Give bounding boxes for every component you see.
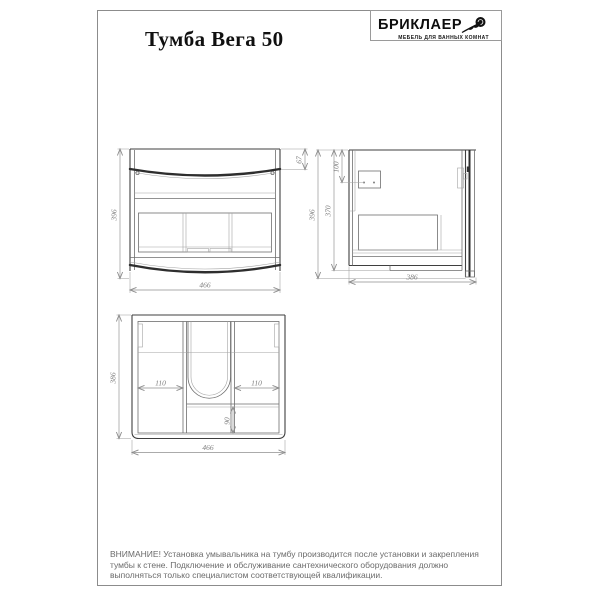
dim-front-height: 396 [110,209,119,222]
front-view-structure [130,149,280,272]
sink-drain-cutout [188,322,231,399]
dim-top-depth: 386 [109,372,118,385]
top-view-dimensions: 386 466 110 110 90 [109,315,286,455]
front-view: 396 466 67 [110,149,308,293]
dim-top-width: 466 [202,443,214,452]
top-view-structure [132,315,285,439]
wall-bracket [359,171,381,188]
dim-side-depth: 386 [405,273,418,282]
dim-side-height: 396 [308,209,317,222]
warning-text: ВНИМАНИЕ! Установка умывальника на тумбу… [110,549,490,581]
dim-top-right-section: 110 [251,379,262,388]
side-view-structure [340,150,476,277]
dim-top-front-rail: 90 [223,417,232,425]
dim-side-body-height: 370 [324,205,333,218]
dim-front-top-panel: 67 [295,156,304,164]
dim-front-width: 466 [199,281,211,290]
dim-side-bracket-offset: 100 [332,161,341,173]
technical-drawings: 396 466 67 [0,0,600,600]
side-view: 396 370 100 386 [308,150,477,285]
top-view: 386 466 110 110 90 [109,315,286,455]
hinge-plate [458,168,464,188]
drawing-sheet-page: Тумба Вега 50 БРИКЛАЕР МЕБЕЛЬ ДЛЯ ВАННЫХ… [0,0,600,600]
side-view-dimensions: 396 370 100 386 [308,150,477,285]
dim-top-left-section: 110 [155,379,166,388]
